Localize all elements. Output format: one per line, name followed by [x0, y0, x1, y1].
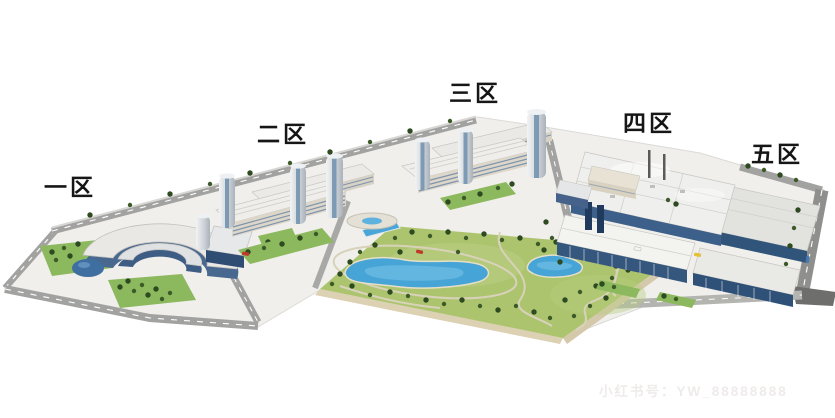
screenshot-canvas: 一区 二区 三区 四区 五区 小红书号：YW_88888888	[0, 0, 835, 418]
zone-3-label: 三区	[449, 82, 501, 105]
campus-3d-render	[0, 0, 835, 418]
zone-2-label: 二区	[257, 123, 309, 146]
zone-4-label: 四区	[623, 112, 675, 135]
zone-1-label: 一区	[44, 176, 96, 199]
watermark-xiaohongshu-id: 小红书号：YW_88888888	[599, 380, 788, 400]
dome-building	[72, 259, 104, 277]
zone-5-label: 五区	[751, 143, 803, 166]
